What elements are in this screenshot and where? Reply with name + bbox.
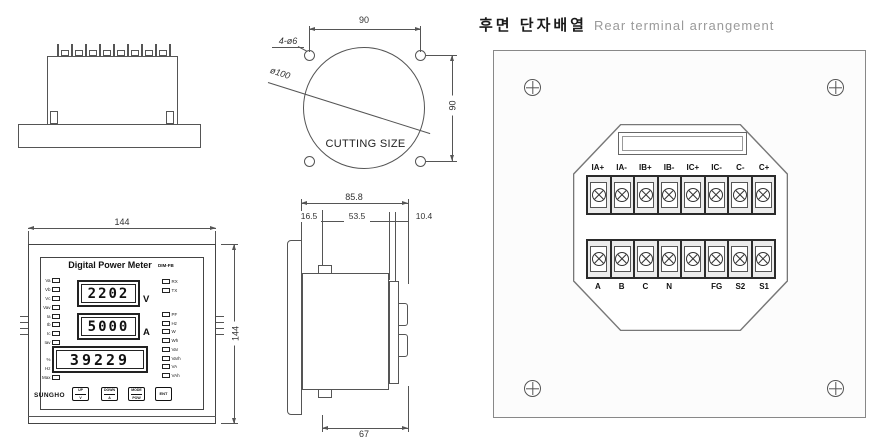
led-indicator	[52, 314, 60, 319]
arrow-icon	[232, 244, 236, 250]
terminal-top	[159, 50, 167, 56]
title-english: Rear terminal arrangement	[594, 18, 774, 33]
led-label: RX	[172, 279, 178, 284]
led-row: PF	[162, 310, 192, 319]
side-body-label: 53.5	[344, 211, 370, 222]
cutout-circle	[303, 47, 425, 169]
terminal	[588, 177, 610, 213]
led-label: Varh	[172, 356, 181, 361]
side-clip	[318, 265, 332, 274]
diameter-label: ø100	[263, 63, 297, 83]
led-label: Iav	[38, 340, 51, 345]
led-row: Max	[36, 373, 60, 382]
led-label: VA	[172, 364, 178, 369]
energy-display: 39229	[52, 346, 148, 373]
terminal-top	[117, 50, 125, 56]
arrow-icon	[450, 155, 454, 161]
terminal-screw-icon	[639, 188, 653, 202]
led-indicator	[52, 340, 60, 345]
dimension-line	[301, 203, 408, 204]
arrow-icon	[309, 27, 315, 31]
terminal-top	[89, 50, 97, 56]
side-bottom-label: 67	[354, 429, 374, 440]
led-row: Ia	[36, 312, 60, 321]
led-label: PF	[172, 312, 178, 317]
title-korean: 후면 단자배열	[479, 17, 587, 34]
terminal-label: IB-	[657, 162, 681, 174]
mounting-hole	[415, 156, 426, 167]
led-indicator	[52, 305, 60, 310]
dim-label-height: 90	[448, 96, 459, 116]
led-label: TX	[172, 288, 178, 293]
terminal	[588, 241, 610, 277]
connector-slot	[618, 132, 747, 155]
terminal-label: FG	[705, 281, 729, 293]
led-row: Ib	[36, 320, 60, 329]
current-value: 5000	[81, 317, 136, 336]
led-indicator	[162, 329, 170, 334]
led-row: Vav	[36, 303, 60, 312]
led-row: VAh	[162, 371, 192, 380]
led-label: Vav	[38, 305, 51, 310]
button-label: DOWN	[104, 388, 115, 392]
led-label: Wh	[172, 338, 179, 343]
led-row: Var	[162, 345, 192, 354]
led-label: Vb	[38, 287, 51, 292]
arrow-icon	[28, 226, 34, 230]
side-terminal-bump	[398, 303, 408, 326]
terminal	[659, 177, 681, 213]
led-indicator	[162, 279, 170, 284]
arrow-icon	[322, 426, 328, 430]
extension-line	[408, 199, 409, 284]
dimension-line	[309, 29, 421, 30]
energy-value: 39229	[56, 350, 144, 369]
terminal-screw-icon	[639, 252, 653, 266]
led-indicator	[162, 373, 170, 378]
phillips-screw-icon	[524, 380, 541, 397]
led-group-left: Va Vb Vc Vav Ia Ib Ic Iav	[36, 276, 60, 347]
side-total-label: 85.8	[340, 192, 368, 203]
led-row: VA	[162, 363, 192, 372]
terminal-label: S2	[729, 281, 753, 293]
led-indicator	[162, 364, 170, 369]
led-row: Varh	[162, 354, 192, 363]
led-indicator	[162, 338, 170, 343]
top-terminal-block	[586, 175, 776, 215]
terminal-top	[61, 50, 69, 56]
top-view-clip	[166, 111, 174, 124]
top-view-clip	[50, 111, 58, 124]
vent-line	[20, 316, 28, 317]
led-label: Va	[38, 278, 51, 283]
datasheet-drawing: 90 90 4-ø6 ø100 CUTTING SIZE 후면 단자배열Rear…	[0, 0, 875, 442]
led-label: Ib	[38, 322, 51, 327]
dim-label-width: 90	[352, 15, 376, 26]
vent-line	[20, 322, 28, 323]
led-label: %	[38, 357, 51, 362]
led-indicator	[52, 331, 60, 336]
top-terminal-labels: IA+ IA- IB+ IB- IC+ IC- C- C+	[586, 162, 776, 174]
led-label: Hz	[38, 366, 51, 371]
terminal-screw-icon	[592, 252, 606, 266]
led-row: W	[162, 328, 192, 337]
extension-line	[389, 212, 390, 280]
vent-line	[216, 334, 224, 335]
led-indicator	[52, 322, 60, 327]
terminal	[659, 241, 681, 277]
bottom-terminal-block	[586, 239, 776, 279]
led-row: Ic	[36, 329, 60, 338]
led-group-right: PF Hz W Wh Var Varh VA VAh	[162, 310, 192, 380]
extension-line	[322, 210, 323, 267]
terminal-screw-icon	[662, 188, 676, 202]
led-group-comm: RX TX	[162, 277, 192, 295]
side-bezel-label: 16.5	[297, 211, 321, 222]
led-label: Max	[38, 375, 51, 380]
front-height-label: 144	[231, 322, 242, 346]
terminal-pin	[85, 44, 87, 57]
terminal-screw-icon	[756, 188, 770, 202]
led-label: VAh	[172, 373, 180, 378]
terminal-screw-icon	[709, 188, 723, 202]
vent-line	[216, 316, 224, 317]
vent-line	[216, 328, 224, 329]
button-label: ENT	[160, 392, 168, 397]
terminal-label: C-	[729, 162, 753, 174]
led-label: W	[172, 329, 176, 334]
terminal	[612, 177, 634, 213]
terminal-top	[103, 50, 111, 56]
mode-button: MODE POW	[128, 387, 145, 401]
terminal-label: A	[586, 281, 610, 293]
section-title: 후면 단자배열Rear terminal arrangement	[479, 14, 774, 35]
led-row: TX	[162, 286, 192, 295]
terminal-label: C	[634, 281, 658, 293]
enter-button: ENT	[155, 387, 172, 401]
vent-line	[20, 328, 28, 329]
led-label: Ia	[38, 314, 51, 319]
terminal-label: S1	[752, 281, 776, 293]
terminal-pin	[57, 44, 59, 57]
dimension-line	[28, 228, 216, 229]
rear-terminal-panel: IA+ IA- IB+ IB- IC+ IC- C- C+	[493, 50, 866, 418]
led-indicator	[52, 287, 60, 292]
model-label: DIM-FB	[158, 263, 182, 268]
arrow-icon	[415, 27, 421, 31]
terminal-label: N	[657, 281, 681, 293]
terminal-screw-icon	[733, 188, 747, 202]
up-button: UP V	[72, 387, 89, 401]
bottom-terminal-labels: A B C N FG S2 S1	[586, 281, 776, 293]
button-label: POW	[132, 396, 140, 400]
mounting-hole	[304, 156, 315, 167]
terminal-screw-icon	[615, 252, 629, 266]
led-row: Hz	[162, 319, 192, 328]
vent-line	[216, 322, 224, 323]
terminal	[682, 241, 704, 277]
terminal-label: IB+	[634, 162, 658, 174]
led-row: Vc	[36, 294, 60, 303]
terminal-screw-icon	[615, 188, 629, 202]
led-indicator	[52, 296, 60, 301]
bezel-line	[28, 416, 216, 417]
terminal-pin	[127, 44, 129, 57]
terminal-top	[145, 50, 153, 56]
terminal-label: IC+	[681, 162, 705, 174]
button-label: A	[108, 396, 111, 400]
terminal-pin	[71, 44, 73, 57]
terminal-label: IA+	[586, 162, 610, 174]
led-indicator	[162, 312, 170, 317]
down-button: DOWN A	[101, 387, 118, 401]
terminal-pin	[141, 44, 143, 57]
terminal-screw-icon	[686, 252, 700, 266]
terminal	[706, 241, 728, 277]
meter-rear-outline	[573, 124, 788, 331]
product-title: Digital Power Meter	[60, 260, 160, 270]
terminal-screw-icon	[592, 188, 606, 202]
terminal-label	[681, 281, 705, 293]
button-label: MODE	[131, 388, 142, 392]
extension-line	[215, 231, 216, 244]
led-indicator	[162, 356, 170, 361]
vent-line	[20, 334, 28, 335]
led-indicator	[52, 375, 60, 380]
led-label: Var	[172, 347, 179, 352]
terminal	[706, 177, 728, 213]
button-label: UP	[78, 388, 83, 392]
terminal-pin	[169, 44, 171, 57]
terminal-pin	[113, 44, 115, 57]
led-label: Hz	[172, 321, 178, 326]
terminal	[612, 241, 634, 277]
arrow-icon	[450, 55, 454, 61]
led-indicator	[162, 347, 170, 352]
terminal	[729, 241, 751, 277]
terminal	[729, 177, 751, 213]
terminal-label: IA-	[610, 162, 634, 174]
phillips-screw-icon	[524, 79, 541, 96]
voltage-value: 2202	[81, 284, 136, 303]
side-rear-section	[389, 281, 399, 384]
led-row: Wh	[162, 336, 192, 345]
arrow-icon	[402, 426, 408, 430]
brand-logo: SUNGHO	[34, 392, 65, 399]
arrow-icon	[232, 418, 236, 424]
terminal-screw-icon	[709, 252, 723, 266]
side-terminal-bump	[398, 334, 408, 357]
voltage-unit: V	[143, 294, 149, 305]
phillips-screw-icon	[827, 79, 844, 96]
terminal	[753, 241, 775, 277]
terminal-screw-icon	[756, 252, 770, 266]
terminal-label: C+	[752, 162, 776, 174]
led-indicator	[52, 278, 60, 283]
led-label: Ic	[38, 331, 51, 336]
extension-line	[28, 231, 29, 244]
terminal-screw-icon	[686, 188, 700, 202]
top-view-body	[47, 56, 178, 125]
extension-line	[408, 386, 409, 432]
terminal-pin	[155, 44, 157, 57]
terminal	[635, 241, 657, 277]
terminal-screw-icon	[733, 252, 747, 266]
terminal-label: B	[610, 281, 634, 293]
button-label: V	[79, 396, 81, 400]
terminal	[753, 177, 775, 213]
cutting-caption: CUTTING SIZE	[318, 138, 413, 150]
led-indicator	[162, 321, 170, 326]
led-row: Vb	[36, 285, 60, 294]
side-rear-label: 10.4	[411, 211, 437, 222]
current-display: 5000	[77, 313, 140, 340]
top-view-flange	[18, 124, 201, 148]
current-unit: A	[143, 327, 150, 338]
arrow-icon	[402, 201, 408, 205]
side-clip	[318, 389, 332, 398]
arrow-icon	[210, 226, 216, 230]
terminal-screw-icon	[662, 252, 676, 266]
side-body	[302, 273, 389, 390]
arrow-icon	[301, 201, 307, 205]
led-row: Va	[36, 276, 60, 285]
phillips-screw-icon	[827, 380, 844, 397]
terminal-top	[75, 50, 83, 56]
voltage-display: 2202	[77, 280, 140, 307]
terminal	[635, 177, 657, 213]
front-width-label: 144	[110, 217, 134, 228]
led-label: Vc	[38, 296, 51, 301]
led-row: RX	[162, 277, 192, 286]
terminal-top	[131, 50, 139, 56]
extension-line	[426, 161, 457, 162]
side-bezel	[287, 240, 302, 415]
terminal-pin	[99, 44, 101, 57]
extension-line	[395, 212, 396, 284]
terminal-label: IC-	[705, 162, 729, 174]
led-indicator	[162, 288, 170, 293]
terminal	[682, 177, 704, 213]
